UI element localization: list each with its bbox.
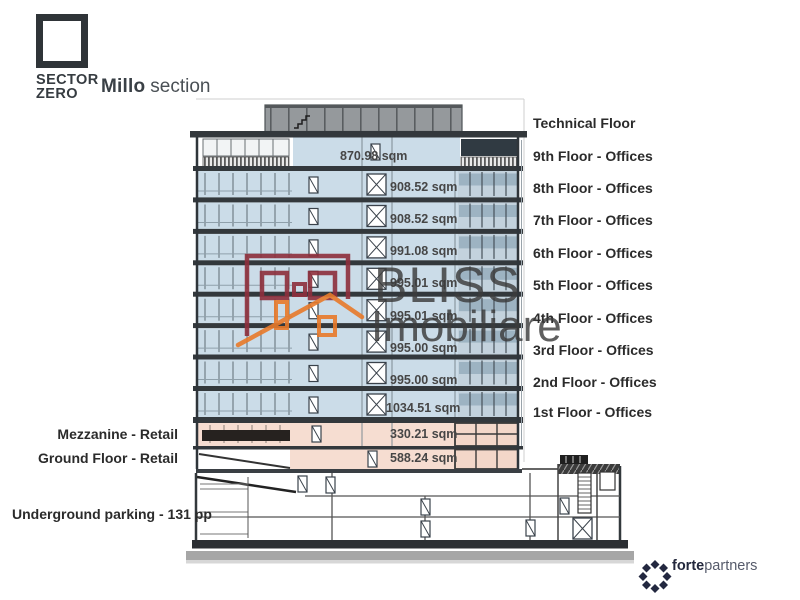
roof-slab bbox=[190, 131, 527, 138]
ground-floor bbox=[199, 450, 518, 470]
brand-forte: forte bbox=[672, 558, 704, 574]
area-ground: 588.24 sqm bbox=[390, 451, 457, 465]
area-5th: 995.01 sqm bbox=[390, 276, 457, 290]
entrance-ramp-line bbox=[199, 454, 290, 468]
floor-label-6th: 6th Floor - Offices bbox=[533, 245, 653, 261]
sector-zero-wordmark: SECTOR ZERO bbox=[36, 74, 99, 101]
glazing-dark bbox=[461, 139, 517, 156]
area-9th: 870.98 sqm bbox=[340, 149, 407, 163]
brand-partners: partners bbox=[704, 558, 757, 574]
floor-label-4th: 4th Floor - Offices bbox=[533, 310, 653, 326]
floor-label-ground: Ground Floor - Retail bbox=[38, 450, 178, 466]
title-project: Millo bbox=[101, 76, 145, 97]
area-6th: 991.08 sqm bbox=[390, 244, 457, 258]
area-1st: 1034.51 sqm bbox=[386, 401, 460, 415]
floor-label-parking: Underground parking - 131 pp bbox=[12, 506, 212, 522]
foundation-slab bbox=[192, 540, 628, 549]
title-view: section bbox=[150, 76, 210, 97]
technical-floor-volume bbox=[265, 105, 462, 132]
slide: SECTOR ZERO Millosection Technical Floor… bbox=[0, 0, 800, 600]
area-3rd: 995.00 sqm bbox=[390, 341, 457, 355]
floor-label-5th: 5th Floor - Offices bbox=[533, 277, 653, 293]
fortepartners-wordmark: fortepartners bbox=[672, 558, 757, 574]
sector-zero-logo bbox=[36, 14, 88, 68]
floor-label-1st: 1st Floor - Offices bbox=[533, 404, 652, 420]
page-title: Millosection bbox=[101, 76, 210, 98]
floor-label-mezzanine: Mezzanine - Retail bbox=[57, 426, 178, 442]
area-7th: 908.52 sqm bbox=[390, 212, 457, 226]
mezzanine-window-band bbox=[202, 430, 290, 441]
storefront-frame bbox=[455, 450, 518, 470]
ground-strip bbox=[186, 551, 634, 560]
floor-label-9th: 9th Floor - Offices bbox=[533, 148, 653, 164]
floor-label-3rd: 3rd Floor - Offices bbox=[533, 342, 654, 358]
area-2nd: 995.00 sqm bbox=[390, 373, 457, 387]
area-mezzanine: 330.21 sqm bbox=[390, 427, 457, 441]
floor-label-8th: 8th Floor - Offices bbox=[533, 180, 653, 196]
parking-entrance-kiosk bbox=[560, 455, 588, 464]
area-4th: 995.01 sqm bbox=[390, 309, 457, 323]
mezzanine-floor bbox=[197, 423, 518, 446]
floor-label-2nd: 2nd Floor - Offices bbox=[533, 374, 657, 390]
fortepartners-icon bbox=[639, 560, 672, 593]
area-8th: 908.52 sqm bbox=[390, 180, 457, 194]
underground-parking bbox=[186, 455, 634, 564]
floor-label-7th: 7th Floor - Offices bbox=[533, 212, 653, 228]
floor-label-technical: Technical Floor bbox=[533, 115, 635, 131]
